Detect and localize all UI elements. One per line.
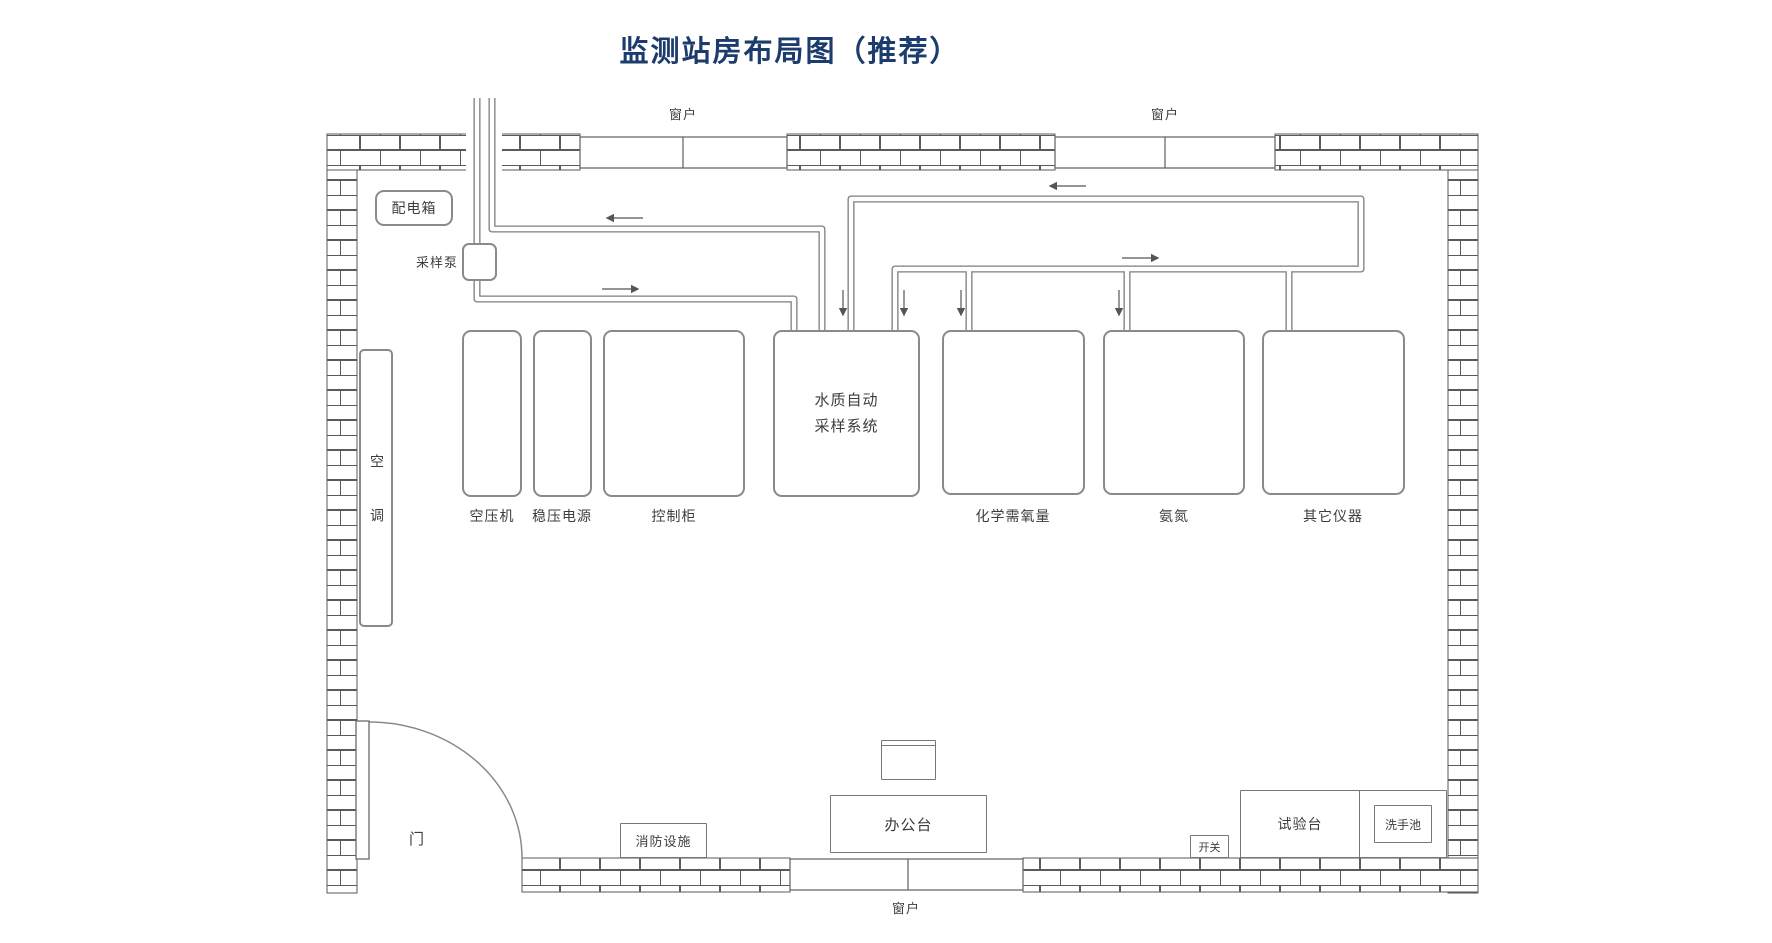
window-top-right-label: 窗户 <box>1135 104 1195 123</box>
wall-left <box>327 170 357 893</box>
sink-label: 洗手池 <box>1385 816 1421 833</box>
water-sampling-system-label: 水质自动采样系统 <box>809 388 885 439</box>
door-leaf <box>356 721 369 859</box>
voltage-stabilizer <box>533 330 592 497</box>
sampling-pump-label: 采样泵 <box>398 252 458 271</box>
window-top-left-label: 窗户 <box>653 104 713 123</box>
voltage-stabilizer-label: 稳压电源 <box>512 506 612 526</box>
desk-monitor-top-edge <box>882 741 935 746</box>
window-bottom-label: 窗户 <box>876 898 936 917</box>
sampling-pump <box>462 243 497 281</box>
other-instruments-label: 其它仪器 <box>1283 506 1383 526</box>
pipe-distribution-loop <box>851 199 1361 331</box>
flow-arrows <box>602 186 1157 314</box>
pipe-wall-pass-through <box>466 132 502 172</box>
ammonia-analyzer-label: 氨氮 <box>1124 506 1224 526</box>
door-swing-arc <box>369 722 522 858</box>
cod-analyzer-label: 化学需氧量 <box>963 506 1063 526</box>
office-desk: 办公台 <box>830 795 987 853</box>
wall-top-segment-right <box>1275 134 1478 170</box>
wall-top-segment-left <box>327 134 580 170</box>
control-cabinet-label: 控制柜 <box>624 506 724 526</box>
desk-monitor <box>881 740 936 780</box>
air-conditioner: 空调 <box>359 349 393 627</box>
pipework <box>477 98 1361 331</box>
other-instruments <box>1262 330 1405 495</box>
floor-plan-page: 监测站房布局图（推荐） <box>0 0 1772 943</box>
window-bottom <box>790 859 1023 890</box>
ammonia-analyzer <box>1103 330 1245 495</box>
control-cabinet <box>603 330 745 497</box>
wall-bottom-segment-left <box>522 858 790 892</box>
air-conditioner-label: 空调 <box>366 414 386 562</box>
water-sampling-system: 水质自动采样系统 <box>773 330 920 497</box>
test-bench-divider <box>1359 791 1360 857</box>
distribution-box-label: 配电箱 <box>392 198 437 218</box>
door-label: 门 <box>402 828 432 849</box>
wall-bottom-segment-right <box>1023 858 1478 892</box>
wall-right <box>1448 170 1478 893</box>
office-desk-label: 办公台 <box>884 814 932 835</box>
door <box>356 721 522 859</box>
pipe-intake-to-sampler <box>477 98 794 331</box>
air-compressor <box>462 330 522 497</box>
light-switch-label: 开关 <box>1199 839 1221 855</box>
distribution-box: 配电箱 <box>375 190 453 226</box>
wall-top-segment-middle <box>787 134 1055 170</box>
fire-equipment-label: 消防设施 <box>635 831 691 850</box>
test-bench-label: 试验台 <box>1241 791 1359 857</box>
sink: 洗手池 <box>1374 805 1432 843</box>
fire-equipment: 消防设施 <box>620 823 707 858</box>
cod-analyzer <box>942 330 1085 495</box>
light-switch: 开关 <box>1190 835 1229 858</box>
